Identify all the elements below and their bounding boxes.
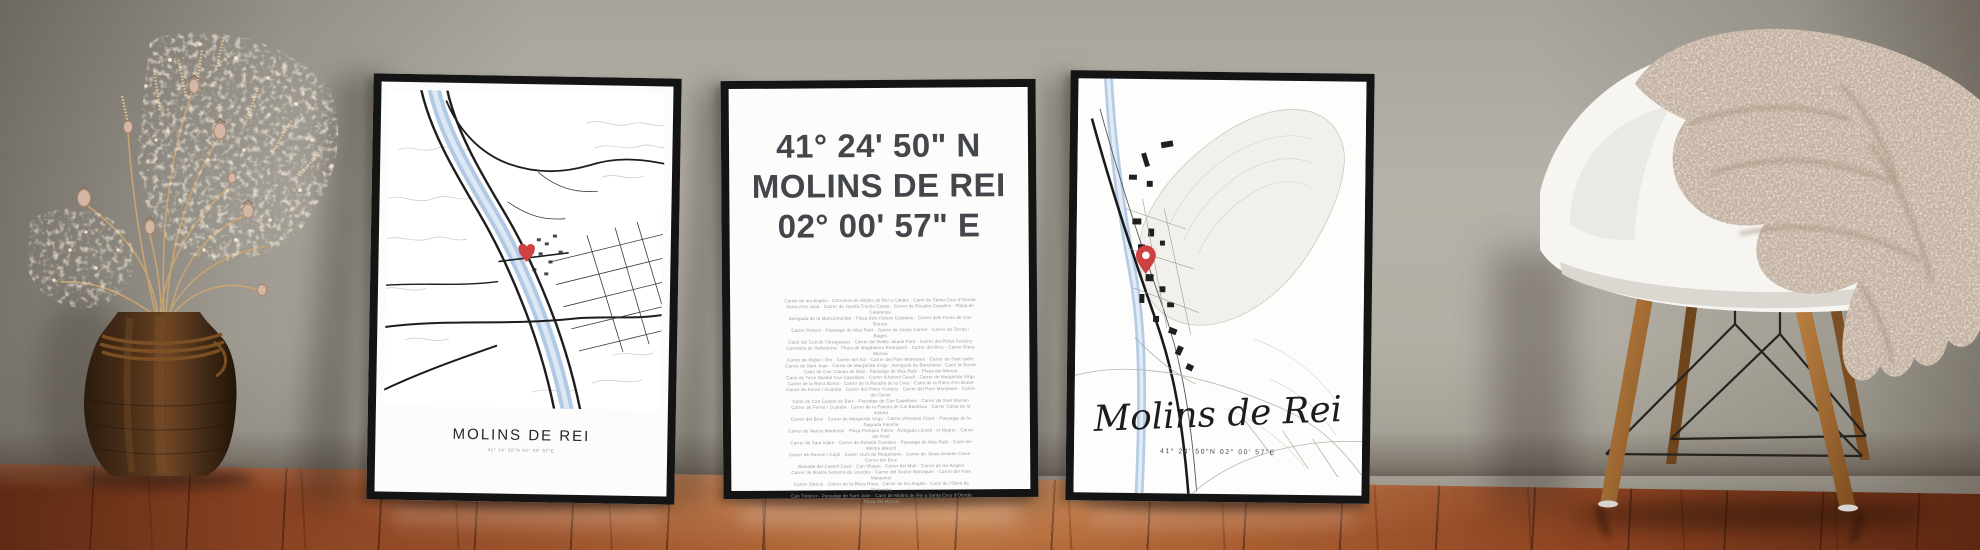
map-left <box>384 90 666 416</box>
coordinate-east: 02° 00' 57" E <box>729 205 1028 247</box>
coordinate-north: 41° 24' 50" N <box>729 125 1028 167</box>
armchair-with-blanket <box>1540 24 1980 550</box>
poster-coordinates: 41° 24' 50" N MOLINS DE REI 02° 00' 57" … <box>721 79 1039 499</box>
chair-foot <box>1838 505 1858 512</box>
poster-right-coordinates: 41° 24' 50"N 02° 00' 57"E <box>1160 447 1276 456</box>
room-scene: MOLINS DE REI 41° 24' 50"N 02° 00' 57"E … <box>0 0 1980 550</box>
street-names-block: Carrer de les Anglès · Carretera de Moli… <box>783 297 977 506</box>
vase-flowers-graphic <box>0 0 350 550</box>
sketch-map-graphic: Molins de Rei 41° 24' 50"N 02° 00' 57"E <box>1073 78 1366 495</box>
chair-front-leg <box>1600 282 1656 504</box>
poster-left-title: MOLINS DE REI <box>375 424 667 446</box>
babys-breath-cluster <box>28 208 134 308</box>
poster-map-classic: MOLINS DE REI 41° 24' 50"N 02° 00' 57"E <box>366 73 681 504</box>
chair-graphic <box>1540 24 1980 548</box>
city-name: MOLINS DE REI <box>729 165 1028 207</box>
dried-flower-arrangement <box>0 0 350 550</box>
city-map-graphic <box>384 90 665 411</box>
poster-left-coordinates: 41° 24' 50"N 02° 00' 57"E <box>416 447 626 455</box>
babys-breath-cluster <box>138 32 338 260</box>
poster-map-script: Molins de Rei 41° 24' 50"N 02° 00' 57"E <box>1065 70 1374 504</box>
chair-foot <box>1598 501 1618 508</box>
poster-center-headline: 41° 24' 50" N MOLINS DE REI 02° 00' 57" … <box>729 125 1029 247</box>
vase-highlight <box>159 316 162 474</box>
